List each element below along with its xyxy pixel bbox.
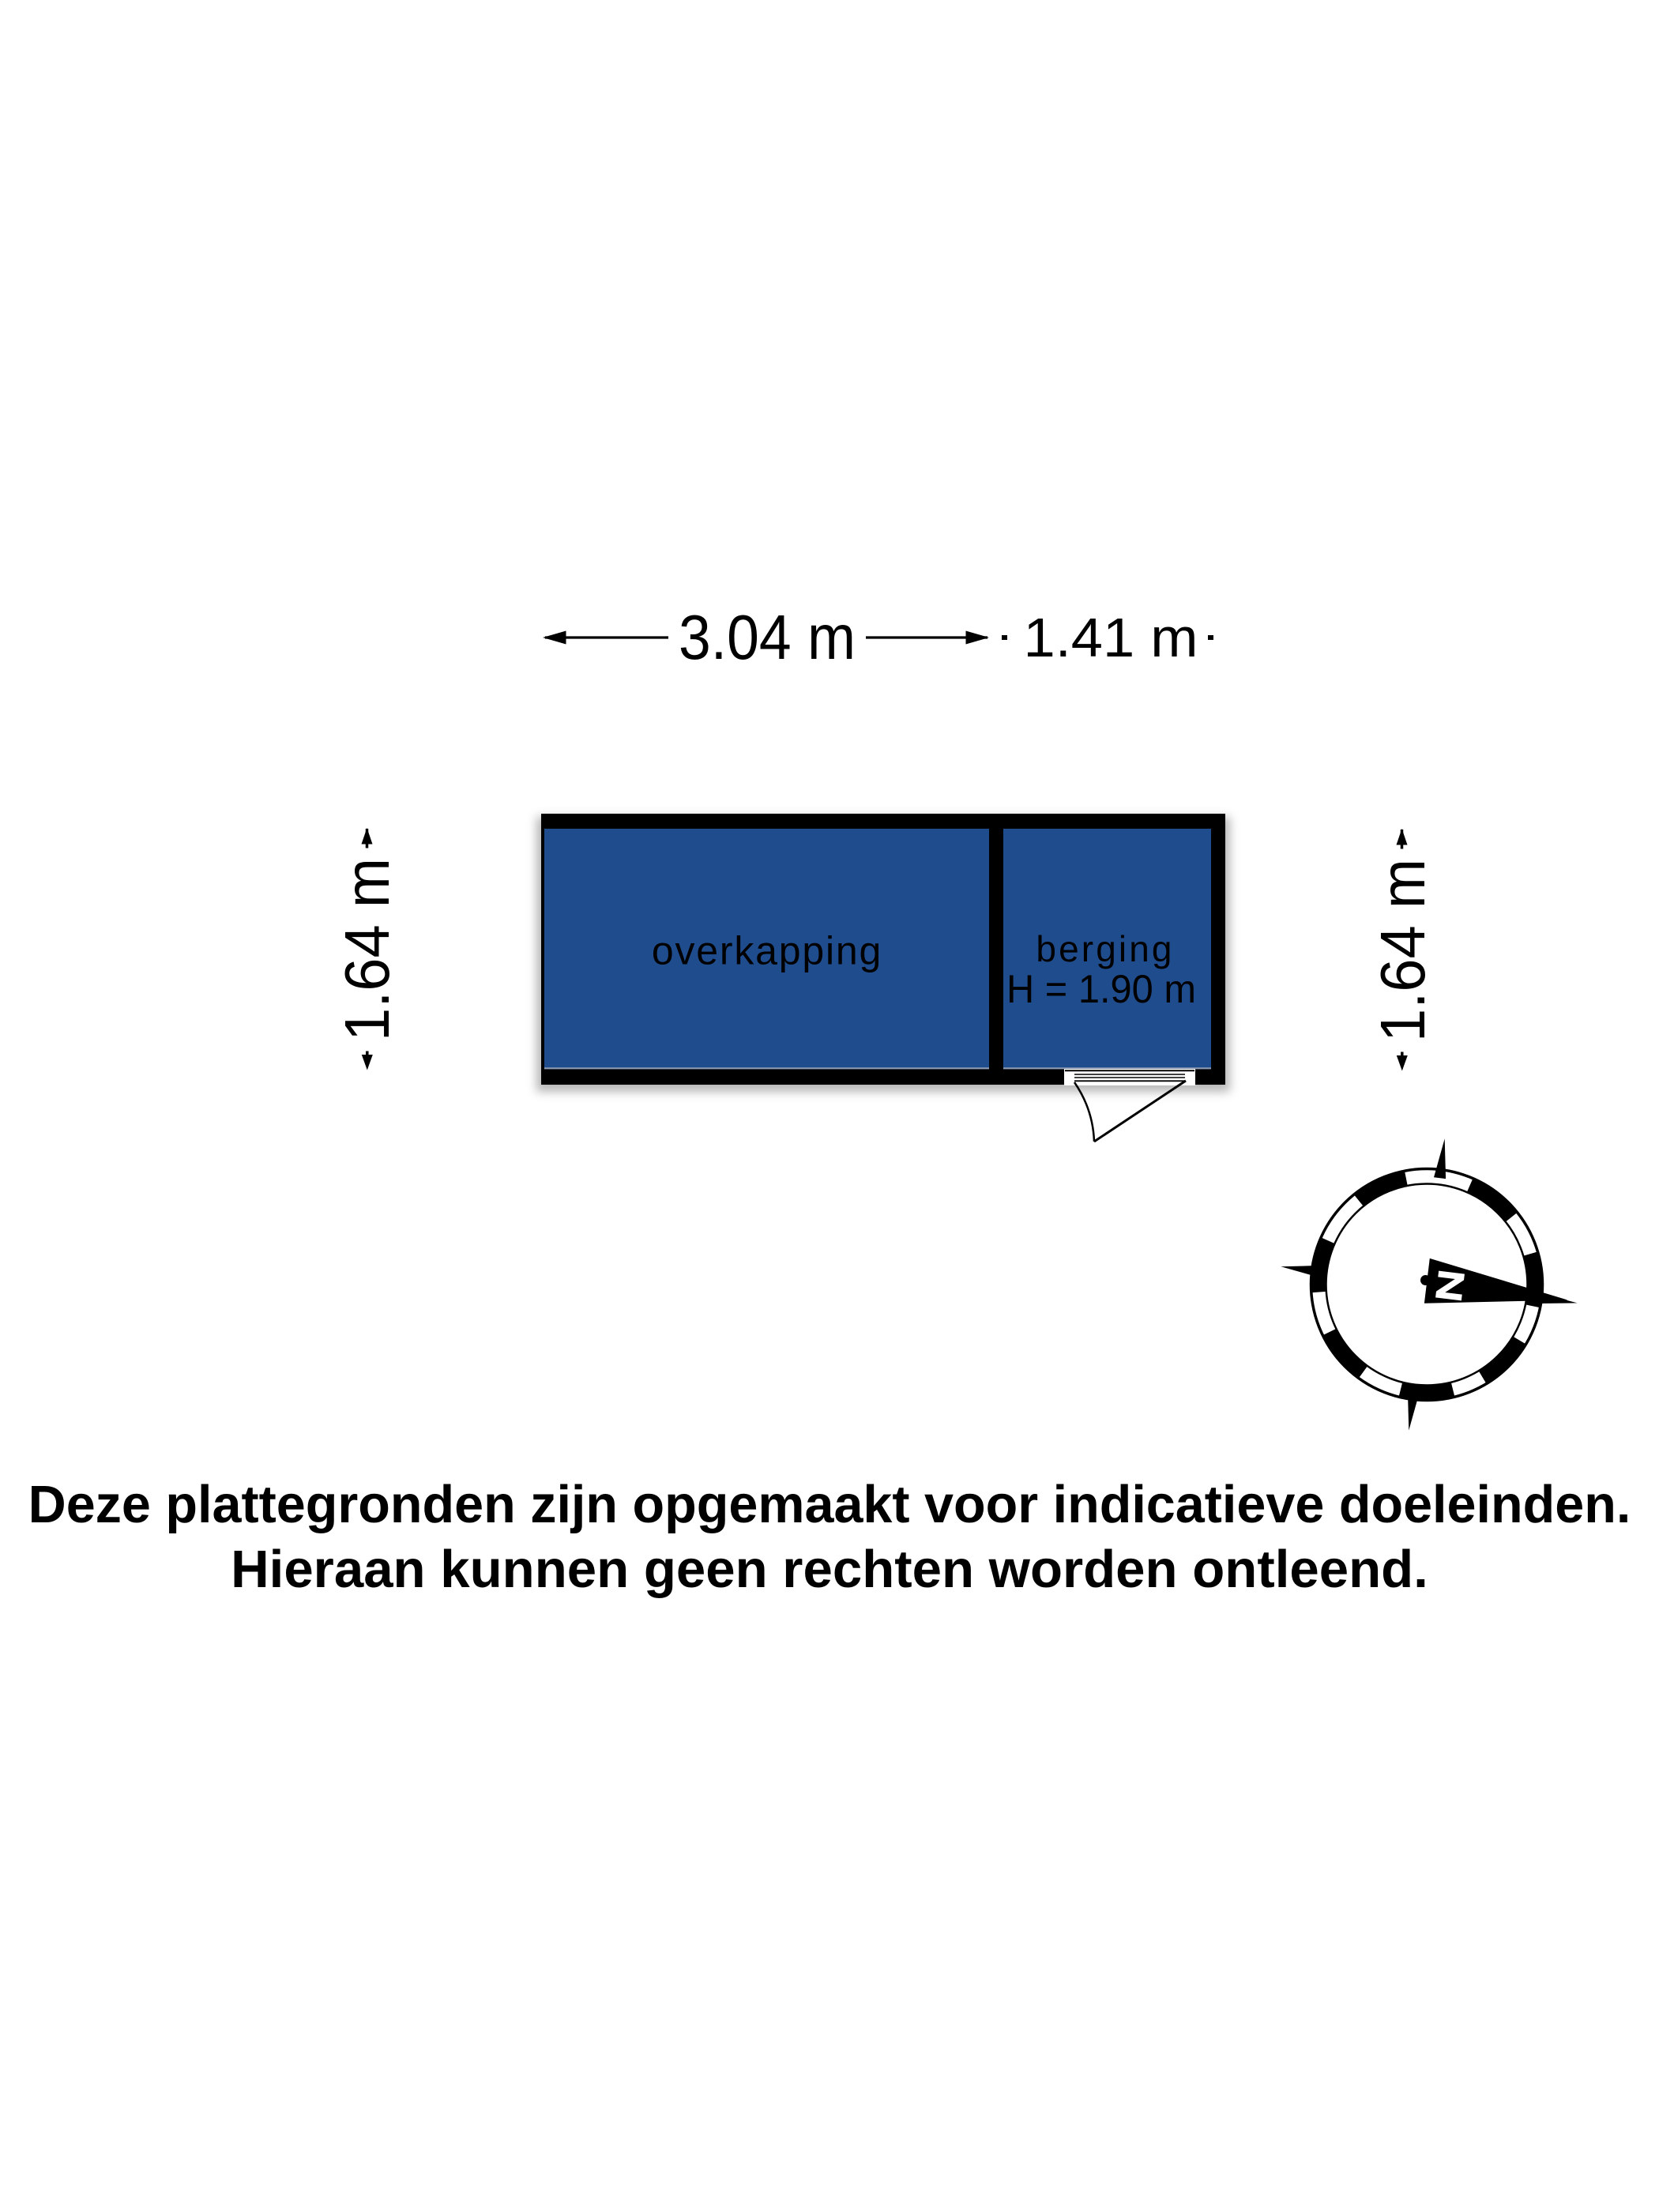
svg-text:Hieraan kunnen geen rechten wo: Hieraan kunnen geen rechten worden ontle…: [231, 1540, 1428, 1599]
svg-text:overkapping: overkapping: [652, 929, 882, 973]
svg-text:1.64 m: 1.64 m: [332, 858, 402, 1041]
svg-text:1.41 m: 1.41 m: [1024, 607, 1198, 668]
svg-text:1.64 m: 1.64 m: [1367, 859, 1438, 1042]
svg-text:berging: berging: [1036, 928, 1174, 969]
svg-text:3.04 m: 3.04 m: [679, 602, 856, 672]
svg-text:Deze plattegronden zijn opgema: Deze plattegronden zijn opgemaakt voor i…: [28, 1476, 1631, 1534]
svg-text:H = 1.90 m: H = 1.90 m: [1006, 967, 1196, 1011]
